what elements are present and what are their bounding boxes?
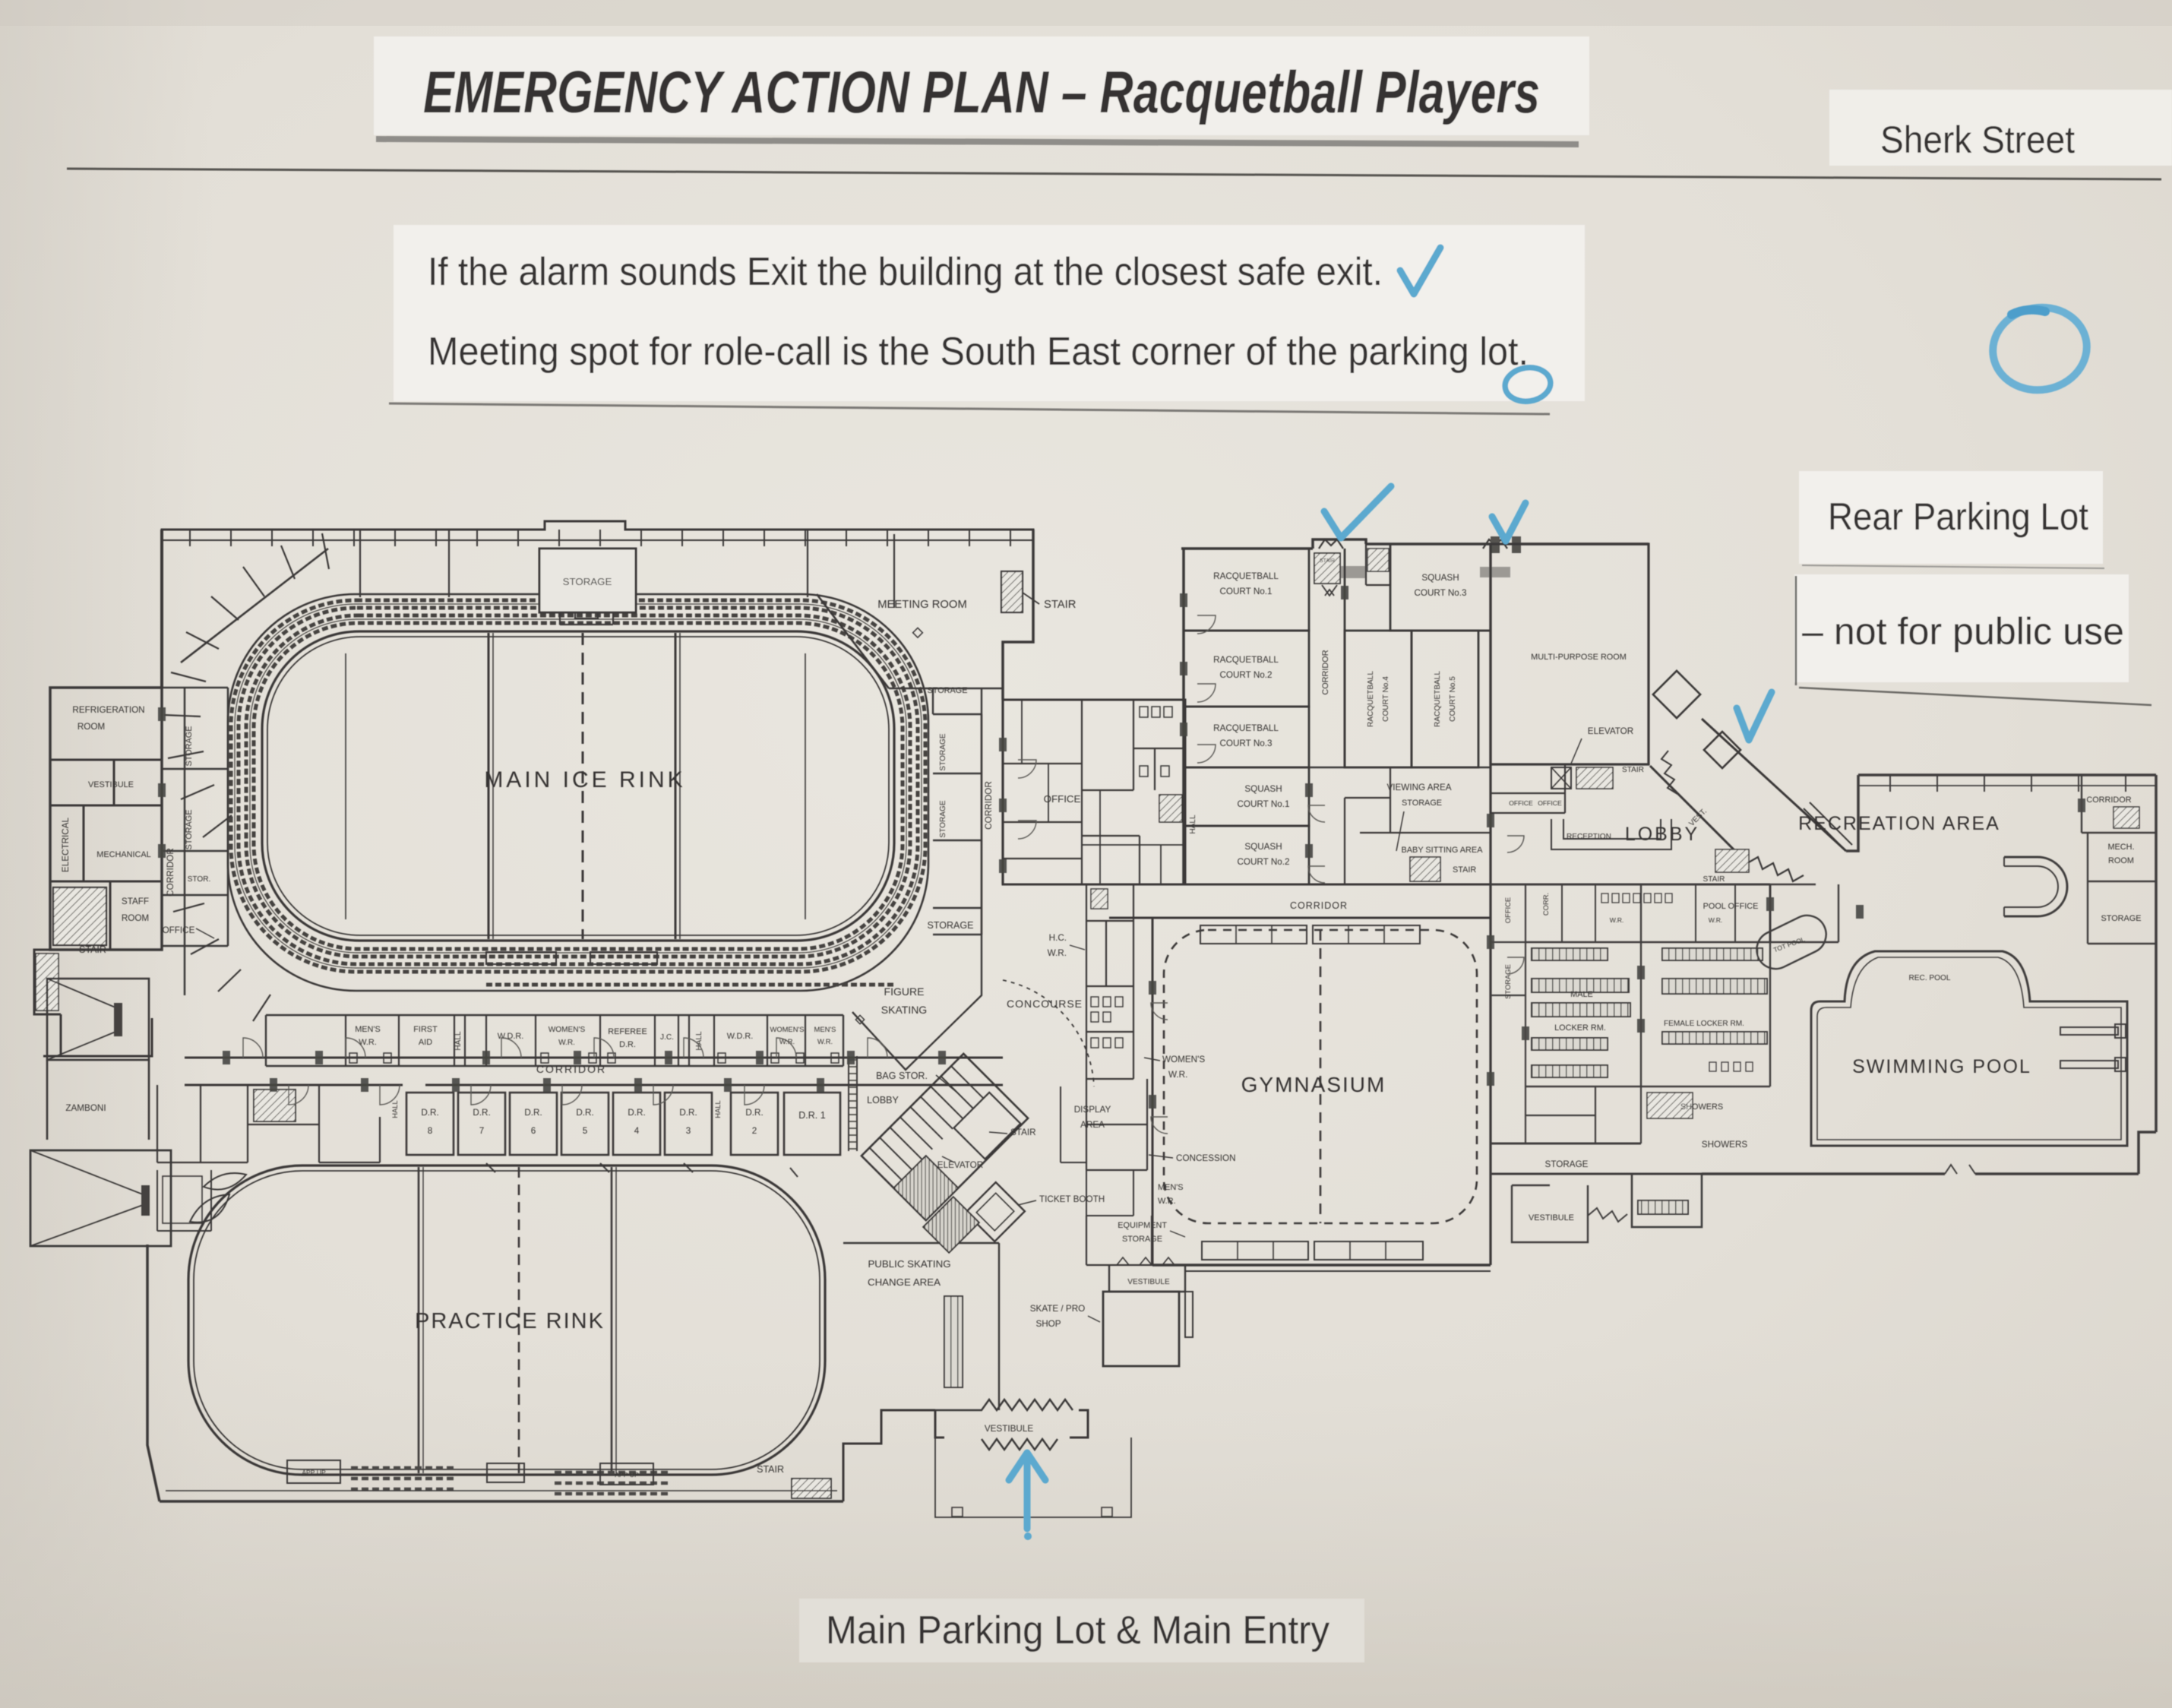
svg-text:SHOWERS: SHOWERS	[1680, 1102, 1723, 1112]
svg-text:REC. POOL: REC. POOL	[1909, 974, 1951, 982]
svg-text:Main Parking Lot & Main Entry: Main Parking Lot & Main Entry	[826, 1608, 1329, 1653]
svg-text:ROOM: ROOM	[2108, 856, 2134, 865]
svg-text:STORAGE: STORAGE	[1545, 1159, 1589, 1169]
svg-text:OFFICE: OFFICE	[163, 925, 195, 935]
svg-text:RACQUETBALL: RACQUETBALL	[1367, 671, 1375, 727]
svg-text:CORRIDOR: CORRIDOR	[166, 848, 175, 897]
svg-text:ELEVATOR: ELEVATOR	[1588, 726, 1633, 736]
svg-text:PRACTICE RINK: PRACTICE RINK	[415, 1309, 605, 1333]
svg-text:STORAGE: STORAGE	[1503, 964, 1512, 999]
svg-text:AID: AID	[419, 1038, 432, 1047]
svg-text:RACQUETBALL: RACQUETBALL	[1213, 655, 1279, 665]
svg-text:HALL: HALL	[713, 1100, 722, 1118]
svg-text:STORAGE: STORAGE	[563, 576, 612, 587]
svg-text:D.R.: D.R.	[628, 1108, 645, 1118]
svg-text:VIEWING AREA: VIEWING AREA	[1386, 783, 1451, 792]
svg-text:EMERGENCY ACTION PLAN – Racque: EMERGENCY ACTION PLAN – Racquetball Play…	[423, 59, 1540, 125]
svg-text:MECHANICAL: MECHANICAL	[96, 850, 150, 859]
svg-text:D.R.: D.R.	[679, 1108, 697, 1118]
svg-text:RACQUETBALL: RACQUETBALL	[1213, 723, 1279, 733]
svg-text:COURT No.1: COURT No.1	[1237, 799, 1289, 809]
svg-text:DISPLAY: DISPLAY	[1074, 1105, 1111, 1115]
svg-text:H.C.: H.C.	[1049, 933, 1067, 943]
svg-text:VESTIBULE: VESTIBULE	[1529, 1213, 1574, 1222]
svg-text:COURT No.2: COURT No.2	[1237, 857, 1289, 867]
svg-text:SQUASH: SQUASH	[1421, 573, 1459, 583]
svg-text:STAIR: STAIR	[1320, 558, 1335, 564]
svg-text:APP UP: APP UP	[302, 1469, 326, 1476]
svg-text:4: 4	[634, 1126, 640, 1136]
svg-text:REFRIGERATION: REFRIGERATION	[72, 705, 144, 715]
svg-text:STAFF: STAFF	[122, 897, 149, 906]
svg-text:STAIR: STAIR	[1010, 1128, 1036, 1137]
svg-text:MULTI-PURPOSE ROOM: MULTI-PURPOSE ROOM	[1531, 653, 1627, 662]
svg-text:D.R.: D.R.	[745, 1108, 763, 1118]
svg-text:VESTIBULE: VESTIBULE	[88, 780, 134, 789]
svg-text:3: 3	[686, 1126, 691, 1136]
svg-text:HALL: HALL	[390, 1100, 399, 1118]
svg-text:CORRIDOR: CORRIDOR	[2086, 795, 2131, 805]
svg-text:FIRST: FIRST	[413, 1025, 438, 1034]
svg-text:STORAGE: STORAGE	[185, 726, 194, 766]
svg-text:WOMEN'S: WOMEN'S	[1162, 1055, 1205, 1064]
svg-text:COURT No.4: COURT No.4	[1382, 676, 1390, 722]
svg-text:BABY SITTING AREA: BABY SITTING AREA	[1402, 846, 1484, 855]
svg-text:LOCKER RM.: LOCKER RM.	[1554, 1023, 1606, 1033]
svg-text:RACQUETBALL: RACQUETBALL	[1213, 571, 1279, 581]
svg-text:D.R.: D.R.	[619, 1040, 636, 1049]
svg-text:COURT No.1: COURT No.1	[1219, 587, 1272, 596]
svg-text:MEETING ROOM: MEETING ROOM	[877, 599, 967, 611]
svg-text:ELEVATOR: ELEVATOR	[937, 1160, 983, 1170]
svg-text:SQUASH: SQUASH	[1244, 784, 1282, 794]
svg-text:STAIR: STAIR	[1044, 599, 1076, 611]
svg-text:LOBBY: LOBBY	[1625, 824, 1699, 845]
svg-text:VESTIBULE: VESTIBULE	[1127, 1278, 1170, 1286]
svg-text:CONCOURSE: CONCOURSE	[1007, 998, 1083, 1010]
svg-text:W.R.: W.R.	[1048, 948, 1067, 958]
svg-text:COURT No.3: COURT No.3	[1219, 739, 1272, 748]
svg-text:APP UP: APP UP	[615, 1471, 639, 1479]
svg-text:CORRIDOR: CORRIDOR	[1290, 900, 1348, 911]
svg-text:SWIMMING POOL: SWIMMING POOL	[1852, 1056, 2031, 1077]
svg-text:STORAGE: STORAGE	[2101, 914, 2141, 923]
svg-text:HALL: HALL	[1189, 814, 1197, 834]
svg-text:WOMEN'S: WOMEN'S	[549, 1026, 586, 1034]
svg-text:CORRIDOR: CORRIDOR	[984, 781, 994, 830]
svg-text:ZAMBONI: ZAMBONI	[65, 1103, 106, 1113]
svg-text:STAIR: STAIR	[79, 944, 106, 955]
svg-text:STORAGE: STORAGE	[1122, 1235, 1162, 1244]
svg-text:5: 5	[583, 1126, 588, 1136]
svg-text:WOMEN'S: WOMEN'S	[770, 1025, 804, 1033]
svg-text:W.D.R.: W.D.R.	[727, 1032, 754, 1041]
svg-text:COURT No.2: COURT No.2	[1219, 670, 1272, 680]
svg-text:8: 8	[428, 1126, 433, 1136]
svg-text:STOR.: STOR.	[188, 875, 211, 884]
svg-text:STORAGE: STORAGE	[1402, 799, 1442, 808]
svg-text:W.R.: W.R.	[817, 1037, 833, 1045]
svg-text:– not for public use: – not for public use	[1802, 610, 2124, 653]
svg-text:HALL: HALL	[695, 1031, 703, 1051]
svg-text:CORRIDOR: CORRIDOR	[1321, 650, 1330, 694]
svg-text:SHOWERS: SHOWERS	[1702, 1140, 1748, 1150]
svg-text:VESTIBULE: VESTIBULE	[985, 1424, 1034, 1434]
svg-text:STORAGE: STORAGE	[928, 920, 974, 931]
svg-text:SKATING: SKATING	[881, 1004, 927, 1016]
svg-text:D.R.: D.R.	[576, 1108, 593, 1118]
svg-text:HALL: HALL	[454, 1031, 463, 1051]
svg-text:COURT No.5: COURT No.5	[1449, 676, 1457, 722]
svg-text:RECEPTION: RECEPTION	[1567, 833, 1611, 841]
svg-text:POOL OFFICE: POOL OFFICE	[1703, 902, 1759, 911]
svg-text:RACQUETBALL: RACQUETBALL	[1434, 671, 1442, 727]
svg-text:STORAGE: STORAGE	[939, 733, 947, 770]
svg-text:STAIR: STAIR	[757, 1464, 784, 1475]
svg-text:OFFICE: OFFICE	[1538, 799, 1562, 807]
svg-text:CONCESSION: CONCESSION	[1176, 1153, 1236, 1163]
svg-text:ROOM: ROOM	[122, 913, 149, 923]
svg-text:J.C.: J.C.	[660, 1033, 674, 1042]
svg-text:MALE: MALE	[1570, 990, 1593, 999]
svg-text:D.R.: D.R.	[421, 1108, 438, 1118]
svg-text:AREA: AREA	[1080, 1120, 1105, 1130]
svg-text:D.R.: D.R.	[473, 1108, 490, 1118]
svg-text:MECH.: MECH.	[2107, 843, 2134, 852]
svg-text:STORAGE: STORAGE	[185, 809, 194, 849]
svg-text:7: 7	[479, 1126, 485, 1136]
svg-text:EQUIPMENT: EQUIPMENT	[1118, 1221, 1167, 1230]
svg-text:ROOM: ROOM	[77, 722, 105, 732]
svg-text:ELECTRICAL: ELECTRICAL	[61, 817, 71, 872]
svg-text:MAIN ICE RINK: MAIN ICE RINK	[484, 767, 685, 792]
svg-text:CHANGE AREA: CHANGE AREA	[868, 1276, 941, 1288]
svg-text:CORRIDOR: CORRIDOR	[536, 1063, 606, 1075]
svg-text:COURT No.3: COURT No.3	[1414, 588, 1466, 598]
svg-text:STORAGE: STORAGE	[939, 800, 947, 837]
svg-text:Rear Parking Lot: Rear Parking Lot	[1828, 495, 2088, 538]
svg-text:OFFICE: OFFICE	[1044, 793, 1081, 805]
svg-text:OFFICE: OFFICE	[1503, 897, 1512, 923]
svg-text:STAIR: STAIR	[1703, 875, 1725, 884]
svg-text:W.R.: W.R.	[1610, 916, 1624, 924]
svg-text:W.R.: W.R.	[1158, 1197, 1176, 1206]
svg-text:Sherk Street: Sherk Street	[1880, 119, 2075, 161]
svg-text:PUBLIC SKATING: PUBLIC SKATING	[868, 1258, 950, 1270]
svg-text:If the alarm sounds Exit the b: If the alarm sounds Exit the building at…	[428, 250, 1383, 294]
svg-text:SQUASH: SQUASH	[1244, 842, 1282, 852]
svg-text:W.R.: W.R.	[1168, 1070, 1187, 1080]
svg-text:TICKET BOOTH: TICKET BOOTH	[1039, 1194, 1105, 1204]
svg-text:Meeting spot for role-call is: Meeting spot for role-call is the South …	[428, 330, 1529, 374]
svg-text:2: 2	[752, 1126, 757, 1136]
svg-text:STAIR: STAIR	[1453, 865, 1476, 875]
svg-text:MEN'S: MEN'S	[1158, 1183, 1184, 1192]
svg-text:RECREATION AREA: RECREATION AREA	[1798, 813, 2000, 834]
svg-text:MEN'S: MEN'S	[814, 1025, 836, 1033]
svg-text:D.R.: D.R.	[524, 1108, 542, 1118]
svg-text:LOBBY: LOBBY	[867, 1095, 899, 1105]
svg-text:6: 6	[531, 1126, 536, 1136]
svg-text:BAG STOR.: BAG STOR.	[876, 1071, 928, 1081]
svg-text:FEMALE LOCKER RM.: FEMALE LOCKER RM.	[1664, 1020, 1744, 1028]
svg-text:D.R. 1: D.R. 1	[798, 1110, 825, 1121]
svg-text:STAIR: STAIR	[1622, 766, 1644, 774]
svg-text:SHOP: SHOP	[1035, 1319, 1061, 1329]
svg-text:W.R.: W.R.	[1709, 916, 1723, 924]
svg-text:MEN'S: MEN'S	[355, 1025, 381, 1034]
svg-text:CORR.: CORR.	[1541, 893, 1550, 916]
svg-text:OFFICE: OFFICE	[1509, 799, 1533, 807]
svg-text:REFEREE: REFEREE	[608, 1027, 647, 1036]
svg-text:W.R.: W.R.	[558, 1039, 575, 1047]
svg-text:FIGURE: FIGURE	[884, 985, 925, 998]
svg-text:STORAGE: STORAGE	[927, 686, 967, 695]
svg-text:SKATE / PRO: SKATE / PRO	[1030, 1304, 1086, 1314]
svg-text:GYMNASIUM: GYMNASIUM	[1241, 1073, 1386, 1096]
